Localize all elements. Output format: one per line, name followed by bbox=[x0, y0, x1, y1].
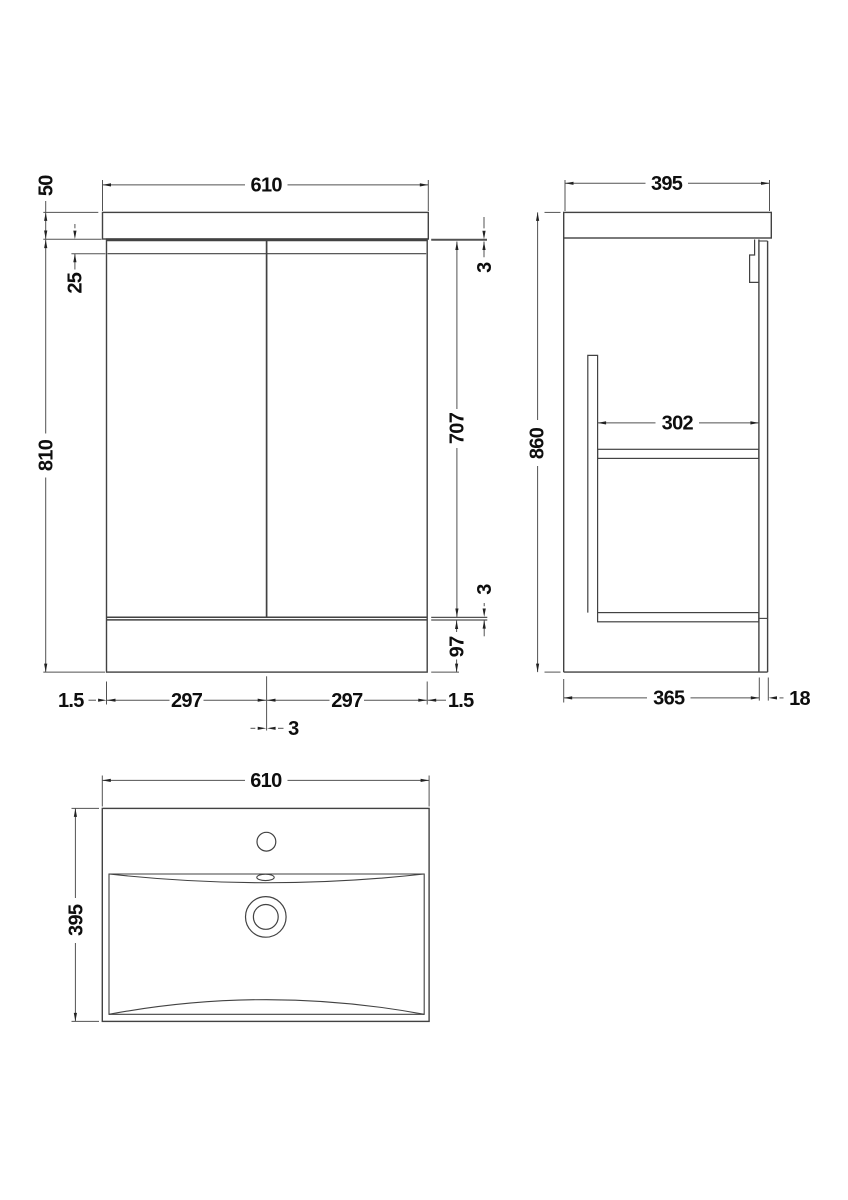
svg-text:297: 297 bbox=[171, 690, 203, 712]
svg-text:610: 610 bbox=[250, 770, 282, 792]
svg-text:810: 810 bbox=[36, 439, 58, 471]
svg-text:50: 50 bbox=[36, 175, 58, 196]
svg-text:707: 707 bbox=[447, 412, 469, 444]
svg-text:365: 365 bbox=[653, 688, 685, 710]
svg-text:3: 3 bbox=[474, 262, 496, 273]
svg-text:1.5: 1.5 bbox=[448, 690, 474, 712]
svg-text:860: 860 bbox=[526, 427, 548, 459]
svg-text:297: 297 bbox=[331, 690, 363, 712]
svg-text:395: 395 bbox=[651, 173, 683, 195]
svg-text:1.5: 1.5 bbox=[58, 690, 84, 712]
svg-text:3: 3 bbox=[474, 584, 496, 595]
svg-text:97: 97 bbox=[446, 636, 468, 657]
svg-text:25: 25 bbox=[65, 272, 87, 293]
svg-text:395: 395 bbox=[65, 904, 87, 936]
svg-text:302: 302 bbox=[662, 413, 694, 435]
svg-text:610: 610 bbox=[251, 175, 283, 197]
svg-text:18: 18 bbox=[789, 688, 810, 710]
svg-text:3: 3 bbox=[288, 718, 299, 740]
